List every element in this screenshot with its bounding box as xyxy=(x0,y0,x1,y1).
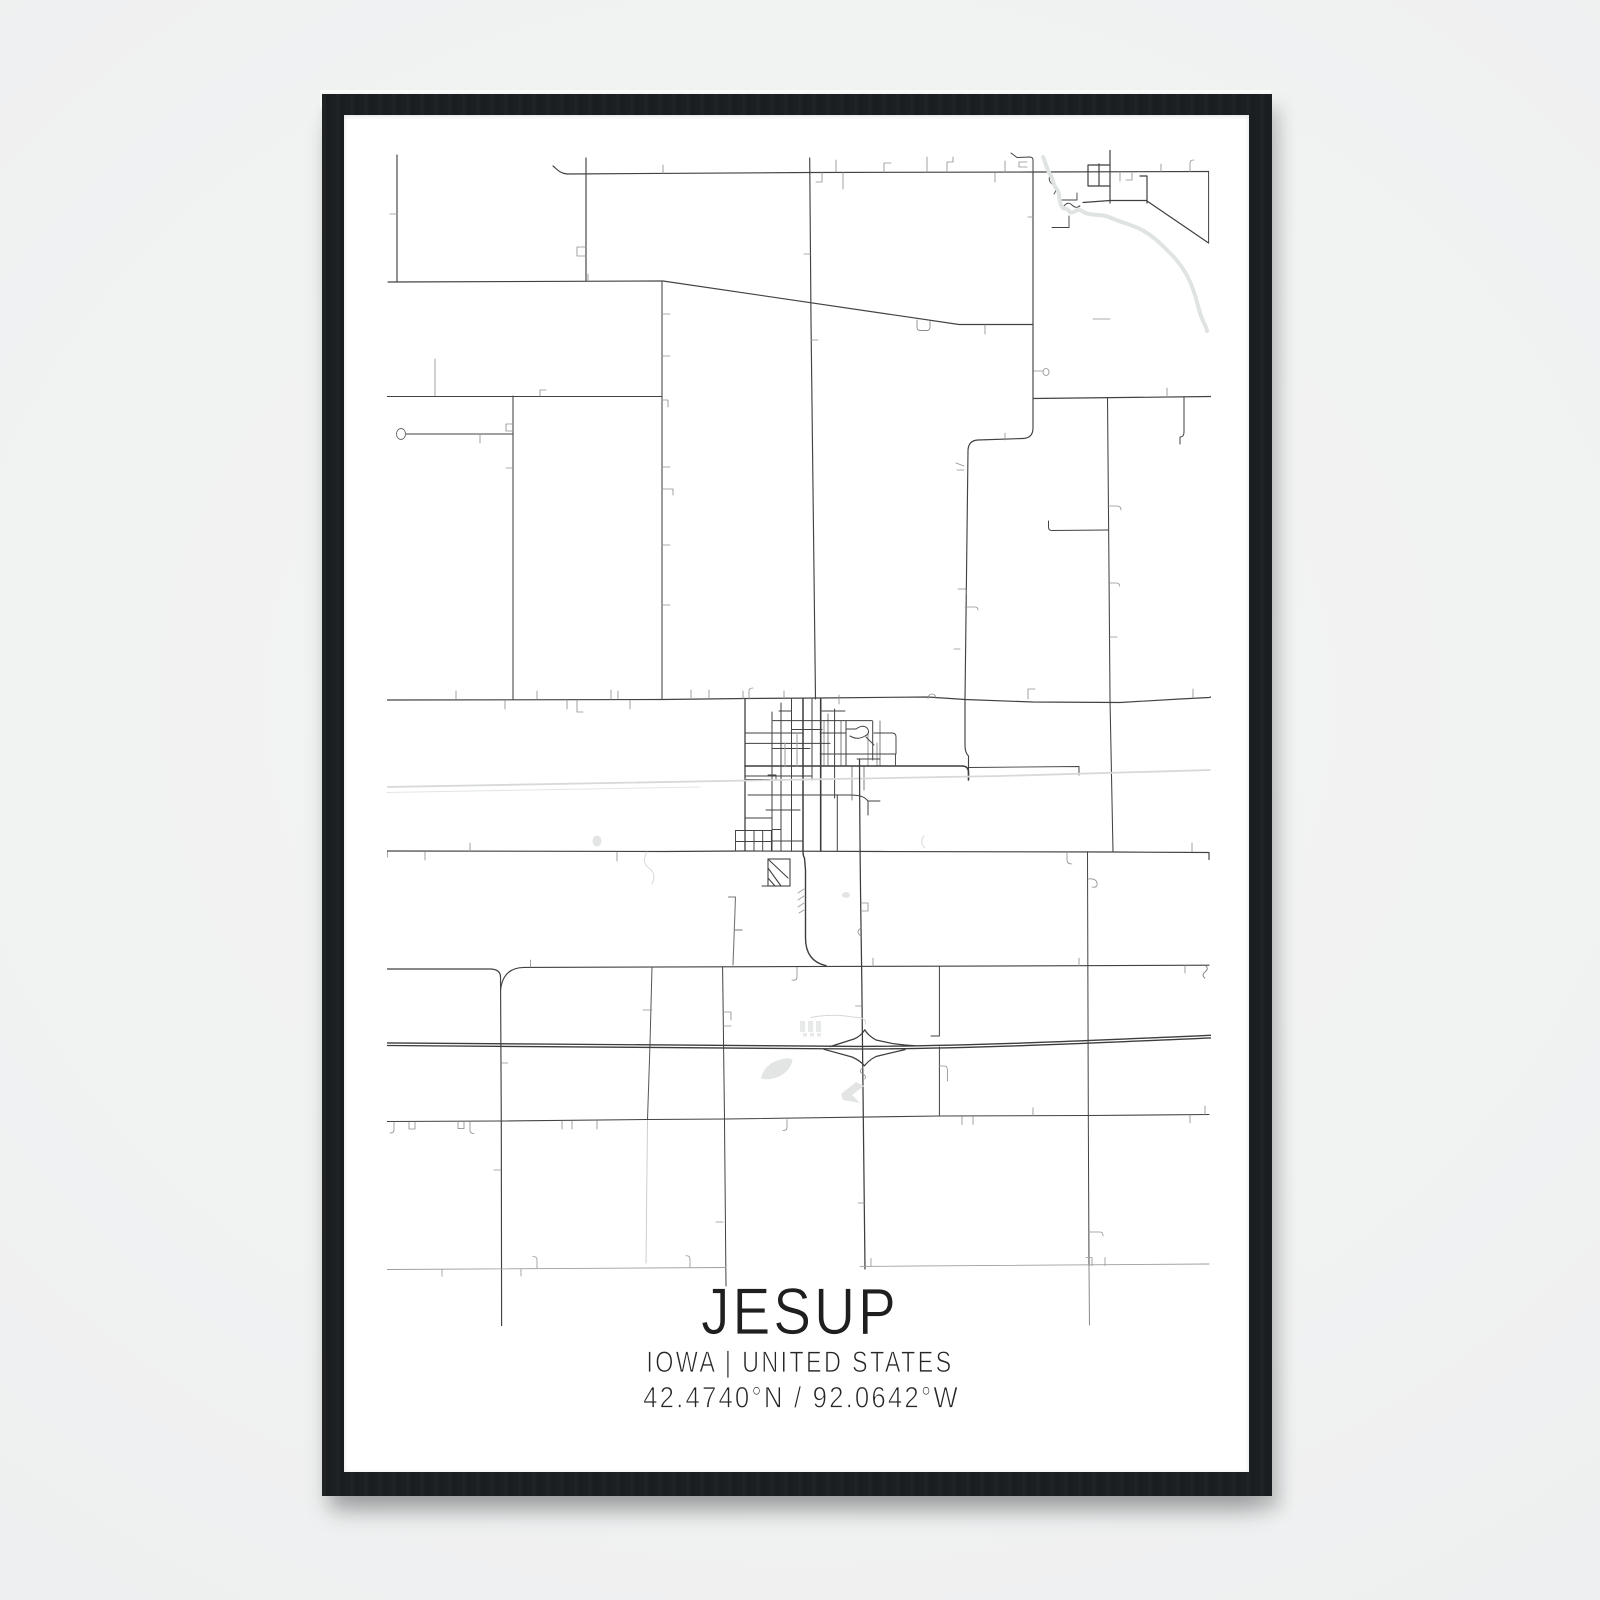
svg-text:42.4740°N / 92.0642°W: 42.4740°N / 92.0642°W xyxy=(643,1381,960,1414)
svg-text:JESUP: JESUP xyxy=(701,1275,899,1348)
svg-text:IOWA | UNITED STATES: IOWA | UNITED STATES xyxy=(646,1345,953,1378)
